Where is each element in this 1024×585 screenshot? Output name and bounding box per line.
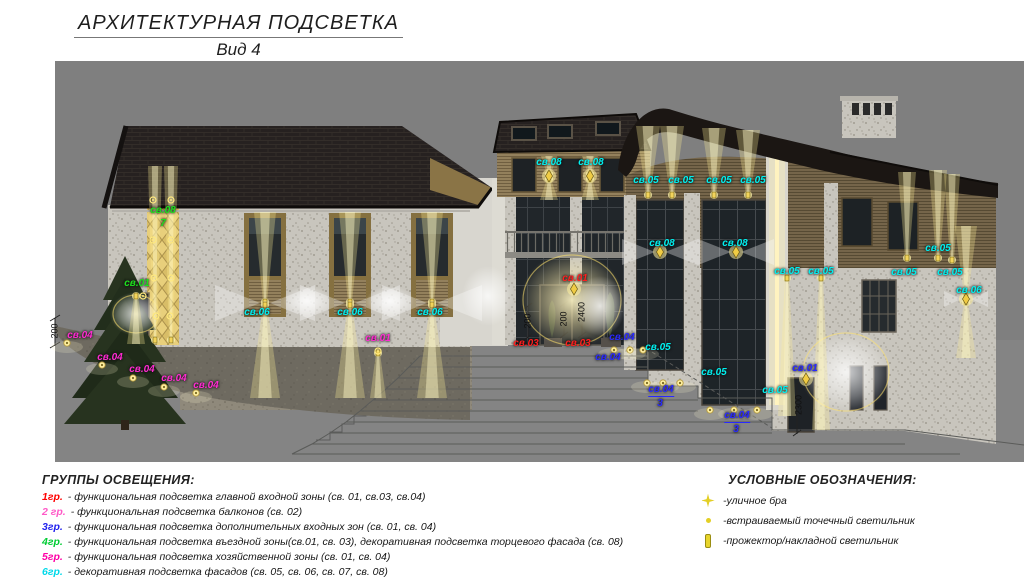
group-desc: - функциональная подсветка хозяйственной… bbox=[68, 551, 391, 563]
recessed-point-center bbox=[662, 382, 664, 384]
recessed-point-center bbox=[709, 409, 711, 411]
recessed-point-center bbox=[756, 409, 758, 411]
view-subtitle: Вид 4 bbox=[74, 40, 403, 60]
groups-legend-header: ГРУППЫ ОСВЕЩЕНИЯ: bbox=[42, 473, 623, 487]
legend-group-row: 6гр. - декоративная подсветка фасадов (с… bbox=[42, 566, 623, 578]
group-code: 2 гр. bbox=[42, 506, 66, 518]
barred-window bbox=[862, 280, 896, 332]
symbol-label: -встраиваемый точечный светильник bbox=[723, 515, 915, 527]
legend-symbol-row: -прожектор/накладной светильник bbox=[700, 534, 917, 547]
ring-light-center bbox=[153, 277, 155, 279]
legend-group-row: 5гр. - функциональная подсветка хозяйств… bbox=[42, 551, 623, 563]
floodlight-icon bbox=[785, 275, 789, 281]
floodlight-icon bbox=[430, 302, 434, 308]
ring-light-center bbox=[170, 239, 172, 241]
light-glow bbox=[574, 276, 626, 336]
legend-group-row: 4гр. - функциональная подсветка въездной… bbox=[42, 536, 623, 548]
floodlight-icon bbox=[646, 192, 650, 198]
floodlight-icon bbox=[905, 255, 909, 261]
ring-light-center bbox=[170, 199, 172, 201]
recessed-point-center bbox=[733, 409, 735, 411]
legend-group-row: 2 гр. - функциональная подсветка балконо… bbox=[42, 506, 623, 518]
recessed-point-center bbox=[646, 382, 648, 384]
symbols-legend-header: УСЛОВНЫЕ ОБОЗНАЧЕНИЯ: bbox=[728, 473, 917, 487]
skylight bbox=[512, 127, 536, 140]
floodlight-icon bbox=[712, 192, 716, 198]
skylight bbox=[548, 125, 572, 138]
recessed-point-center bbox=[679, 382, 681, 384]
recessed-point-center bbox=[66, 342, 68, 344]
legend-symbol-row: -встраиваемый точечный светильник bbox=[700, 514, 917, 527]
floodlight-icon bbox=[134, 293, 138, 299]
ring-light-center bbox=[142, 295, 144, 297]
right-window-grid-a bbox=[636, 200, 684, 370]
floodlight-icon bbox=[670, 192, 674, 198]
recessed-point-center bbox=[642, 349, 644, 351]
ring-light-center bbox=[169, 315, 171, 317]
floodlight-icon bbox=[263, 302, 267, 308]
recessed-point-icon bbox=[700, 514, 716, 527]
recessed-point-center bbox=[613, 349, 615, 351]
symbols-legend: УСЛОВНЫЕ ОБОЗНАЧЕНИЯ: -уличное бра -встр… bbox=[700, 473, 917, 547]
group-desc: - функциональная подсветка балконов (св.… bbox=[71, 506, 302, 518]
street-sconce-icon bbox=[700, 494, 716, 507]
floodlight-icon bbox=[169, 337, 173, 343]
group-code: 6гр. bbox=[42, 566, 63, 578]
recessed-point-center bbox=[101, 364, 103, 366]
floodlight-icon bbox=[936, 255, 940, 261]
ring-light-center bbox=[152, 199, 154, 201]
page-title: АРХИТЕКТУРНАЯ ПОДСВЕТКА bbox=[74, 12, 403, 38]
floodlight-icon bbox=[819, 275, 823, 281]
right-window-grid-b bbox=[702, 200, 766, 405]
ring-light-center bbox=[155, 315, 157, 317]
floodlight-icon bbox=[348, 302, 352, 308]
legend-symbol-row: -уличное бра bbox=[700, 494, 917, 507]
group-code: 3гр. bbox=[42, 521, 63, 533]
floodlight-icon bbox=[700, 534, 716, 547]
group-desc: - декоративная подсветка фасадов (св. 05… bbox=[68, 566, 388, 578]
group-code: 5гр. bbox=[42, 551, 63, 563]
symbol-label: -прожектор/накладной светильник bbox=[723, 535, 898, 547]
group-code: 4гр. bbox=[42, 536, 63, 548]
symbol-label: -уличное бра bbox=[723, 495, 787, 507]
ring-light-center bbox=[170, 277, 172, 279]
legend-group-row: 3гр. - функциональная подсветка дополнит… bbox=[42, 521, 623, 533]
chimney bbox=[840, 96, 898, 138]
floodlight-icon bbox=[746, 192, 750, 198]
title-block: АРХИТЕКТУРНАЯ ПОДСВЕТКА Вид 4 bbox=[74, 12, 403, 60]
lighting-groups-legend: ГРУППЫ ОСВЕЩЕНИЯ: 1гр. - функциональная … bbox=[42, 473, 623, 578]
group-desc: - функциональная подсветка въездной зоны… bbox=[68, 536, 623, 548]
floodlight-icon bbox=[950, 257, 954, 263]
group-desc: - функциональная подсветка дополнительны… bbox=[68, 521, 436, 533]
group-code: 1гр. bbox=[42, 491, 63, 503]
recessed-point-center bbox=[132, 377, 134, 379]
recessed-point-center bbox=[195, 392, 197, 394]
legend-group-row: 1гр. - функциональная подсветка главной … bbox=[42, 491, 623, 503]
ring-light-center bbox=[152, 239, 154, 241]
group-desc: - функциональная подсветка главной входн… bbox=[68, 491, 426, 503]
recessed-point-center bbox=[163, 386, 165, 388]
skylight bbox=[596, 122, 620, 135]
floodlight-icon bbox=[153, 337, 157, 343]
ring-light-center bbox=[377, 350, 379, 352]
